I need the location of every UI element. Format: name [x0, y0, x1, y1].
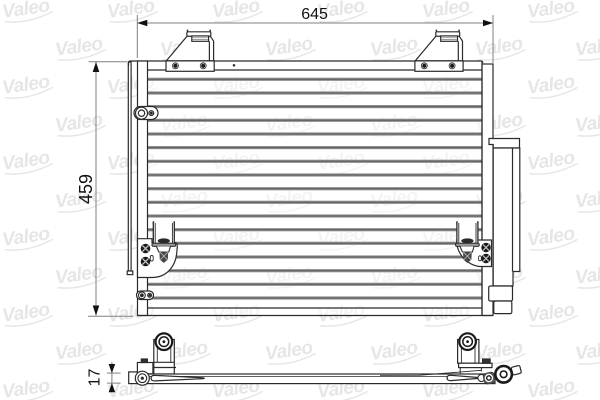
svg-text:645: 645: [301, 6, 328, 23]
svg-text:459: 459: [76, 174, 96, 204]
svg-text:17: 17: [87, 369, 104, 387]
